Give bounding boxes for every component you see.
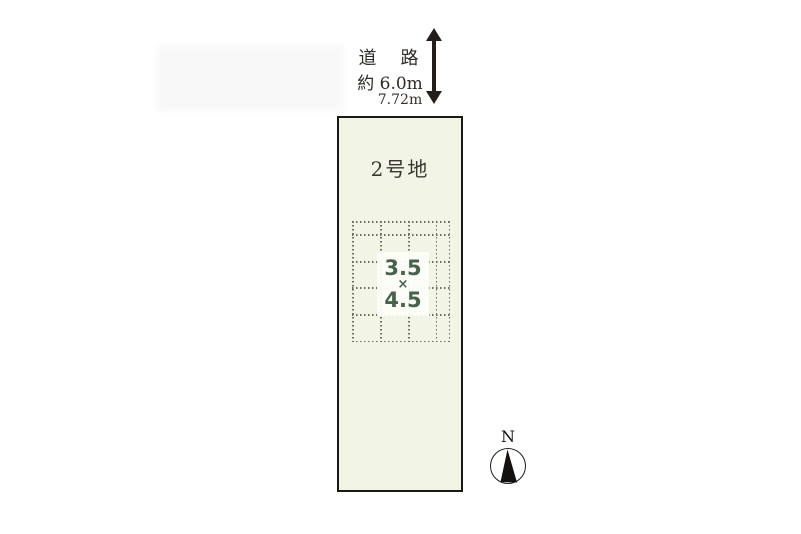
building-depth-value: 4.5 — [384, 291, 421, 310]
background-artifact — [157, 46, 344, 111]
grid-line-v — [449, 221, 451, 342]
lot-name-label: 2号地 — [337, 153, 463, 182]
arrow-shaft — [432, 37, 436, 95]
grid-line-v — [436, 221, 438, 342]
lot-plan-diagram: 道 路 約 6.0m 7.72m 2号地 3.5 × 4.5 N — [0, 0, 801, 534]
grid-line-v — [352, 221, 354, 342]
compass-north-label: N — [494, 427, 522, 446]
frontage-dimension-label: 7.72m — [358, 92, 442, 108]
compass-needle-icon — [490, 448, 526, 484]
building-dimensions: 3.5 × 4.5 — [377, 252, 429, 316]
building-width-value: 3.5 — [384, 259, 421, 278]
